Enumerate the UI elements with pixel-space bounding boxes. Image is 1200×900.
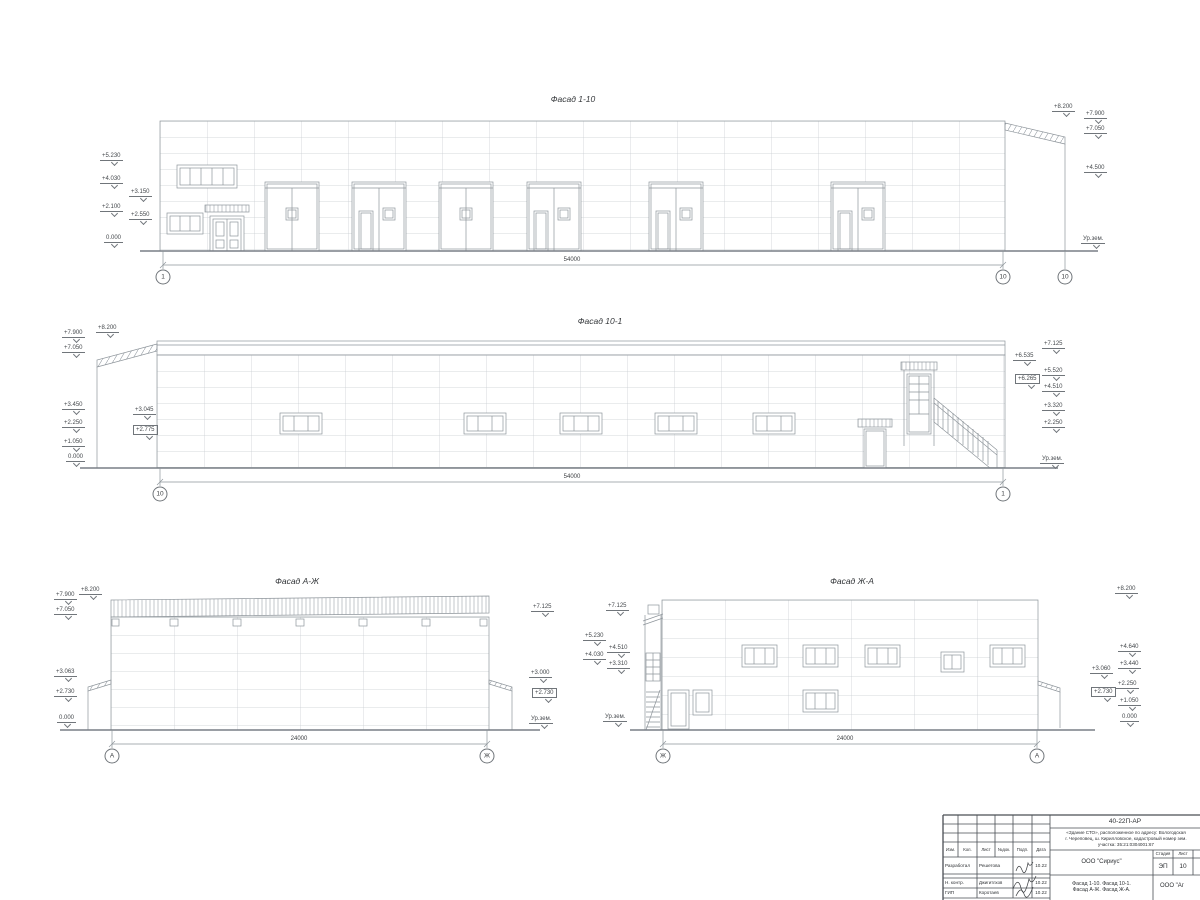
elevation-tick-icon	[593, 639, 600, 646]
titleblock-role-3: ГИП	[945, 888, 976, 898]
dimension-label: 24000	[837, 736, 854, 742]
elevation-mark: +1.050	[62, 439, 85, 451]
elevation-mark-label: +2.250	[1116, 681, 1139, 689]
titleblock-role-2: Н. контр.	[945, 878, 976, 888]
elevation-mark: +6.265	[1015, 374, 1040, 388]
elevation-mark: +8.200	[96, 325, 119, 337]
axis-bubble: А	[105, 749, 120, 764]
elevation-mark: Ур.зем.	[603, 714, 627, 726]
elevation-mark-label: +8.200	[1115, 586, 1138, 594]
elevation-mark-label: +8.200	[96, 325, 119, 333]
elevation-tick-icon	[64, 695, 71, 702]
elevation-mark: +7.900	[1084, 111, 1107, 123]
elevation-mark-label: +5.230	[583, 633, 606, 641]
elevation-mark-label: +3.045	[133, 407, 156, 415]
elevation-mark: +7.125	[1042, 341, 1065, 353]
elevation-mark-label: +3.320	[1042, 403, 1065, 411]
elevation-mark-label: +5.230	[100, 153, 123, 161]
titleblock-name-1: Решетова	[979, 857, 1012, 874]
elevation-mark: +3.440	[1118, 661, 1141, 673]
titleblock-name-2: Джигитлхов	[979, 878, 1012, 888]
elevation-mark-label: +6.265	[1015, 374, 1040, 384]
elevation-mark: +2.775	[133, 425, 158, 439]
axis-bubble: Ж	[480, 749, 495, 764]
elevation-tick-icon	[110, 210, 117, 217]
elevation-tick-icon	[143, 413, 150, 420]
titleblock-sheet-label: Лист	[1173, 850, 1193, 858]
elevation-mark-label: +3.063	[54, 669, 77, 677]
elevation-mark: +7.050	[54, 607, 77, 619]
elevation-mark: +4.510	[607, 645, 630, 657]
elevation-mark: +2.250	[62, 420, 85, 432]
elevation-mark: +3.000	[529, 670, 552, 682]
axis-bubble: 1	[996, 487, 1011, 502]
signature-1	[1016, 862, 1033, 873]
elevation-mark-label: +4.030	[583, 652, 606, 660]
elevation-tick-icon	[544, 696, 551, 703]
elevation-tick-icon	[89, 593, 96, 600]
elevation-mark-label: +7.900	[54, 592, 77, 600]
dimension-label: 24000	[291, 736, 308, 742]
elevation-tick-icon	[110, 159, 117, 166]
elevation-mark: +4.030	[100, 176, 123, 188]
facade-title: Фасад 10-1	[578, 317, 623, 326]
elevation-tick-icon	[106, 331, 113, 338]
elevation-linework	[0, 0, 1200, 900]
titleblock-date-1: 10.22	[1032, 857, 1050, 874]
elevation-mark: Ур.зем.	[1081, 236, 1105, 248]
titleblock-sheet-title: Фасад 1-10. Фасад 10-1. Фасад А-Ж. Фасад…	[1052, 876, 1151, 898]
elevation-mark: +7.900	[62, 330, 85, 342]
elevation-mark-label: +1.050	[1118, 698, 1141, 706]
elevation-mark-label: +4.500	[1084, 165, 1107, 173]
elevation-mark: +2.730	[1091, 687, 1116, 701]
elevation-mark: +3.310	[607, 661, 630, 673]
elevation-mark-label: +7.050	[54, 607, 77, 615]
elevation-mark: +3.320	[1042, 403, 1065, 415]
elevation-mark-label: +2.730	[532, 688, 557, 698]
elevation-tick-icon	[1128, 650, 1135, 657]
elevation-tick-icon	[1023, 359, 1030, 366]
titleblock-organization-2: ООО "Аг	[1160, 876, 1200, 898]
elevation-mark: +5.230	[100, 153, 123, 165]
elevation-mark-label: +2.100	[100, 204, 123, 212]
elevation-mark-label: +5.520	[1042, 368, 1065, 376]
elevation-mark-label: +7.125	[606, 603, 629, 611]
elevation-mark: +4.640	[1118, 644, 1141, 656]
elevation-mark: +2.730	[54, 689, 77, 701]
elevation-mark: +2.250	[1042, 420, 1065, 432]
elevation-mark: +2.100	[100, 204, 123, 216]
facade-title: Фасад Ж-А	[830, 577, 874, 586]
elevation-mark-label: +4.510	[1042, 384, 1065, 392]
elevation-mark: +3.060	[1090, 666, 1113, 678]
elevation-tick-icon	[1094, 171, 1101, 178]
titleblock-project-description: «Здание СТО», расположенное по адресу: В…	[1052, 829, 1200, 849]
elevation-mark-label: Ур.зем.	[603, 714, 627, 722]
elevation-mark-label: +7.050	[1084, 126, 1107, 134]
elevation-mark-label: +7.125	[1042, 341, 1065, 349]
elevation-mark: +8.200	[79, 587, 102, 599]
elevation-tick-icon	[1128, 667, 1135, 674]
elevation-tick-icon	[139, 195, 146, 202]
elevation-mark-label: +7.900	[62, 330, 85, 338]
titleblock-sheet-number: 10	[1173, 858, 1193, 875]
elevation-mark: Ур.зем.	[529, 716, 553, 728]
elevation-mark-label: +2.730	[1091, 687, 1116, 697]
elevation-mark-label: +8.200	[79, 587, 102, 595]
elevation-tick-icon	[1052, 374, 1059, 381]
elevation-mark-label: +7.125	[531, 604, 554, 612]
titleblock-date-3: 10.22	[1032, 888, 1050, 898]
elevation-mark-label: +3.440	[1118, 661, 1141, 669]
elevation-mark-label: +2.250	[1042, 420, 1065, 428]
elevation-tick-icon	[539, 676, 546, 683]
elevation-tick-icon	[72, 408, 79, 415]
elevation-mark: +7.125	[606, 603, 629, 615]
elevation-tick-icon	[1052, 390, 1059, 397]
elevation-mark: +3.045	[133, 407, 156, 419]
elevation-mark-label: +3.310	[607, 661, 630, 669]
titleblock-header-list: Лист	[977, 842, 995, 857]
elevation-mark: +1.050	[1118, 698, 1141, 710]
elevation-mark: +6.535	[1013, 353, 1036, 365]
elevation-mark: Ур.зем.	[1040, 456, 1064, 468]
titleblock-header-ndok: №док.	[995, 842, 1013, 857]
elevation-tick-icon	[1128, 704, 1135, 711]
elevation-tick-icon	[616, 609, 623, 616]
titleblock-header-data: Дата	[1032, 842, 1050, 857]
titleblock-organization: ООО "Сириус"	[1052, 851, 1151, 874]
titleblock-stage-value: ЭП	[1153, 858, 1173, 875]
elevation-mark: +4.510	[1042, 384, 1065, 396]
elevation-mark: +7.050	[1084, 126, 1107, 138]
elevation-tick-icon	[1052, 426, 1059, 433]
elevation-mark: +7.050	[62, 345, 85, 357]
elevation-mark: +3.150	[129, 189, 152, 201]
elevation-mark-label: +7.050	[62, 345, 85, 353]
axis-bubble: Ж	[656, 749, 671, 764]
titleblock-date-2: 10.22	[1032, 878, 1050, 888]
drawing-sheet: Фасад 1-10+5.230+4.030+3.150+2.100+2.550…	[0, 0, 1200, 900]
elevation-mark-label: +3.450	[62, 402, 85, 410]
elevation-tick-icon	[72, 445, 79, 452]
elevation-mark-label: +2.250	[62, 420, 85, 428]
elevation-mark-label: +2.730	[54, 689, 77, 697]
elevation-tick-icon	[617, 651, 624, 658]
elevation-tick-icon	[1094, 117, 1101, 124]
elevation-mark-label: +3.060	[1090, 666, 1113, 674]
elevation-mark: +5.230	[583, 633, 606, 645]
elevation-mark: 0.000	[57, 715, 76, 727]
elevation-tick-icon	[1103, 695, 1110, 702]
elevation-tick-icon	[1126, 687, 1133, 694]
axis-bubble: А	[1030, 749, 1045, 764]
elevation-mark: +7.900	[54, 592, 77, 604]
elevation-tick-icon	[64, 613, 71, 620]
elevation-tick-icon	[1125, 592, 1132, 599]
elevation-tick-icon	[72, 351, 79, 358]
axis-bubble: 10	[996, 270, 1011, 285]
elevation-mark-label: Ур.зем.	[1081, 236, 1105, 244]
elevation-mark: 0.000	[104, 235, 123, 247]
dimension-label: 54000	[564, 257, 581, 263]
axis-bubble: 10	[1058, 270, 1073, 285]
titleblock-header-izm: Изм.	[943, 842, 958, 857]
elevation-tick-icon	[541, 610, 548, 617]
elevation-mark-label: +3.000	[529, 670, 552, 678]
titleblock-name-3: Коротаев	[979, 888, 1012, 898]
elevation-mark-label: Ур.зем.	[1040, 456, 1064, 464]
elevation-mark-label: +8.200	[1052, 104, 1075, 112]
elevation-mark-label: +2.550	[129, 212, 152, 220]
elevation-mark-label: +3.150	[129, 189, 152, 197]
axis-bubble: 10	[153, 487, 168, 502]
elevation-mark: +2.250	[1116, 681, 1139, 693]
elevation-mark-label: +4.640	[1118, 644, 1141, 652]
elevation-tick-icon	[593, 658, 600, 665]
elevation-tick-icon	[1062, 110, 1069, 117]
facade-title: Фасад А-Ж	[275, 577, 319, 586]
elevation-mark: +3.450	[62, 402, 85, 414]
elevation-mark: 0.000	[66, 454, 85, 466]
dimension-label: 54000	[564, 474, 581, 480]
axis-bubble: 1	[156, 270, 171, 285]
elevation-mark-label: +7.900	[1084, 111, 1107, 119]
elevation-mark-label: +4.030	[100, 176, 123, 184]
elevation-tick-icon	[1100, 672, 1107, 679]
elevation-tick-icon	[617, 667, 624, 674]
elevation-tick-icon	[145, 433, 152, 440]
elevation-tick-icon	[139, 218, 146, 225]
elevation-tick-icon	[1052, 347, 1059, 354]
elevation-mark: +7.125	[531, 604, 554, 616]
elevation-tick-icon	[72, 336, 79, 343]
elevation-mark: +3.063	[54, 669, 77, 681]
titleblock-stage-label: Стадия	[1153, 850, 1173, 858]
elevation-tick-icon	[1027, 382, 1034, 389]
elevation-mark-label: +2.775	[133, 425, 158, 435]
titleblock-header-kol: Кол.	[958, 842, 977, 857]
elevation-tick-icon	[110, 182, 117, 189]
elevation-mark: +5.520	[1042, 368, 1065, 380]
elevation-mark: +4.500	[1084, 165, 1107, 177]
description-line-3: участка: 35:21:0304001:67	[1098, 842, 1154, 848]
elevation-mark: +4.030	[583, 652, 606, 664]
titleblock-document-code: 40-22П-АР	[1050, 816, 1200, 828]
elevation-mark: 0.000	[1120, 714, 1139, 726]
elevation-tick-icon	[64, 598, 71, 605]
elevation-tick-icon	[72, 426, 79, 433]
elevation-mark: +8.200	[1052, 104, 1075, 116]
titleblock-header-podp: Подп.	[1013, 842, 1032, 857]
elevation-mark: +2.730	[532, 688, 557, 702]
elevation-mark: +8.200	[1115, 586, 1138, 598]
facade-title: Фасад 1-10	[551, 95, 596, 104]
elevation-mark-label: Ур.зем.	[529, 716, 553, 724]
elevation-mark-label: +1.050	[62, 439, 85, 447]
elevation-tick-icon	[1094, 132, 1101, 139]
titleblock-role-1: Разработал	[945, 857, 976, 874]
elevation-mark-label: +6.535	[1013, 353, 1036, 361]
sheet-title-line-2: Фасад А-Ж. Фасад Ж-А.	[1073, 887, 1131, 893]
elevation-tick-icon	[64, 675, 71, 682]
elevation-mark: +2.550	[129, 212, 152, 224]
elevation-tick-icon	[1052, 409, 1059, 416]
elevation-mark-label: +4.510	[607, 645, 630, 653]
